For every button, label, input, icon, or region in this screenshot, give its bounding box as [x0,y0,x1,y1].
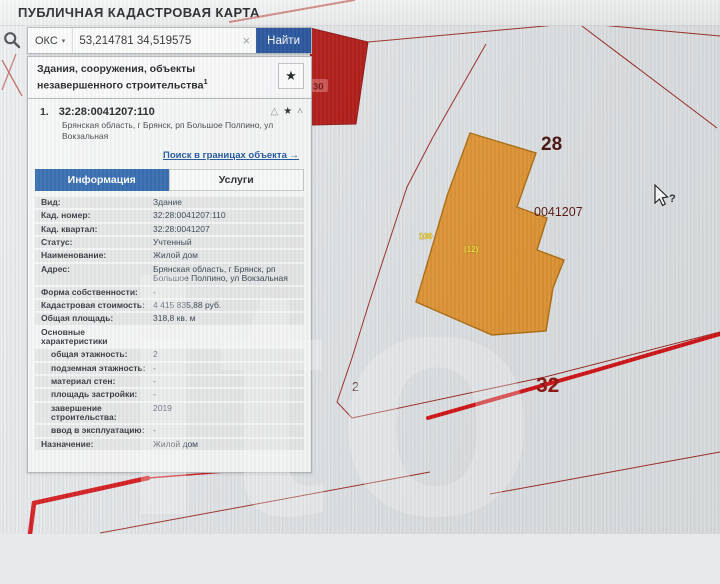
tab-services[interactable]: Услуги [169,169,305,191]
table-row: Назначение: Жилой дом [35,439,304,450]
table-row: Основные характеристики [35,327,304,348]
section-header: Здания, сооружения, объекты незавершенно… [27,56,312,101]
search-category-select[interactable]: ОКС ▾ [28,28,73,53]
row-value: Здание [153,198,300,207]
row-label: Адрес: [41,265,153,284]
red-parcel-label: 30 [313,82,324,93]
tab-information[interactable]: Информация [35,169,169,191]
table-row: материал стен: - [35,376,304,387]
app-header: ПУБЛИЧНАЯ КАДАСТРОВАЯ КАРТА [0,0,720,26]
row-value: - [153,377,300,386]
parcel-boundary-line [490,452,720,494]
parcel-2-label: 2 [352,380,359,394]
row-label: завершение строительства: [41,404,153,423]
quarter-number-label: 0041207 [534,205,583,219]
table-row: Статус: Учтенный [35,237,304,248]
row-label: Кадастровая стоимость: [41,301,153,310]
table-row: подземная этажность: - [35,363,304,374]
row-label: Форма собственности: [41,288,153,297]
search-category-label: ОКС [35,35,58,47]
object-info-table: Вид: Здание Кад. номер: 32:28:0041207:11… [34,197,305,450]
row-label: площадь застройки: [41,390,153,399]
result-item-icons: △ ★ ˄ [270,106,303,117]
find-button[interactable]: Найти [256,28,311,53]
row-label: ввод в эксплуатацию: [41,426,153,435]
row-value: Учтенный [153,238,300,247]
row-value: - [153,390,300,399]
mouse-cursor-icon: ? [652,184,692,218]
link-row: Поиск в границах объекта → [34,142,305,167]
row-value: 318,8 кв. м [153,314,300,323]
map-sketch-line [2,54,16,90]
table-row: Вид: Здание [35,197,304,208]
building-polygon[interactable] [416,133,564,335]
table-row: Адрес: Брянская область, г Брянск, рп Бо… [35,264,304,285]
section-title: Здания, сооружения, объекты незавершенно… [37,63,269,93]
red-parcel-polygon[interactable] [310,28,368,125]
result-item-header[interactable]: 1. 32:28:0041207:110 △ ★ ˄ [34,104,305,118]
parcel-boundary-line [100,472,430,533]
star-icon[interactable]: ★ [283,106,292,117]
row-label: материал стен: [41,377,153,386]
table-row: Кад. номер: 32:28:0041207:110 [35,210,304,221]
table-row: Общая площадь: 318,8 кв. м [35,313,304,324]
row-value: 32:28:0041207:110 [153,211,300,220]
row-value [153,328,300,347]
object-info-panel: 1. 32:28:0041207:110 △ ★ ˄ Брянская обла… [27,98,312,473]
building-number-label: 100 [419,232,433,241]
row-label: Наименование: [41,251,153,260]
row-label: Вид: [41,198,153,207]
results-count-sup: 1 [203,77,207,86]
row-label: Кад. номер: [41,211,153,220]
page-title: ПУБЛИЧНАЯ КАДАСТРОВАЯ КАРТА [18,5,260,20]
row-value: 2 [153,350,300,359]
road-line [30,478,148,534]
clear-search-icon[interactable]: × [237,33,257,48]
panel-tabs: Информация Услуги [35,169,304,191]
building-number-label: (12) [464,245,479,254]
table-row: ввод в эксплуатацию: - [35,425,304,436]
cadastral-number: 32:28:0041207:110 [59,106,155,118]
table-row: завершение строительства: 2019 [35,403,304,424]
table-row: Форма собственности: - [35,287,304,298]
collapse-icon[interactable]: ˄ [297,106,303,117]
search-input[interactable] [73,35,236,47]
road-32-label: 32 [536,374,559,397]
chevron-down-icon: ▾ [62,37,66,45]
cursor-help-glyph: ? [669,193,676,205]
row-value: Брянская область, г Брянск, рп Большое П… [153,265,300,284]
row-value: Жилой дом [153,251,300,260]
table-row: площадь застройки: - [35,389,304,400]
table-row: Наименование: Жилой дом [35,250,304,261]
row-value: 32:28:0041207 [153,225,300,234]
parcel-boundary-line [330,23,720,46]
row-label: Кад. квартал: [41,225,153,234]
parcel-28-label: 28 [541,134,562,155]
row-value: 2019 [153,404,300,423]
row-label: Статус: [41,238,153,247]
row-label: Назначение: [41,440,153,449]
search-bar: ОКС ▾ × Найти [27,27,312,54]
object-address: Брянская область, г Брянск, рп Большое П… [62,120,280,142]
row-value: Жилой дом [153,440,300,449]
row-label: общая этажность: [41,350,153,359]
row-label: подземная этажность: [41,364,153,373]
result-index: 1. [40,106,49,118]
search-in-bounds-link[interactable]: Поиск в границах объекта → [163,150,299,161]
row-value: 4 415 835,88 руб. [153,301,300,310]
row-label: Основные характеристики [41,328,153,347]
parcel-boundary-line [578,23,717,128]
row-label: Общая площадь: [41,314,153,323]
search-icon[interactable] [3,31,21,49]
favorites-star-button[interactable]: ★ [278,63,304,89]
row-value: - [153,364,300,373]
table-row: Кадастровая стоимость: 4 415 835,88 руб. [35,300,304,311]
table-row: Кад. квартал: 32:28:0041207 [35,224,304,235]
row-value: - [153,288,300,297]
road-line [428,334,720,418]
row-value: - [153,426,300,435]
table-row: общая этажность: 2 [35,349,304,360]
warning-icon[interactable]: △ [270,106,278,117]
